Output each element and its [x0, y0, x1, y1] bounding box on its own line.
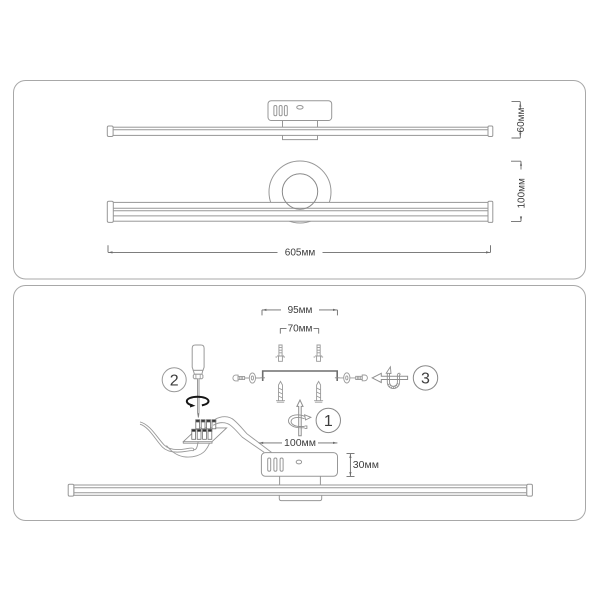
svg-text:100мм: 100мм [517, 178, 528, 209]
svg-text:70мм: 70мм [288, 324, 313, 335]
svg-text:605мм: 605мм [285, 248, 316, 259]
svg-text:2: 2 [170, 373, 179, 390]
svg-text:1: 1 [324, 413, 333, 430]
svg-text:60мм: 60мм [516, 107, 527, 132]
svg-text:100мм: 100мм [284, 437, 316, 449]
svg-text:30мм: 30мм [353, 459, 379, 471]
svg-text:3: 3 [421, 371, 430, 388]
svg-text:95мм: 95мм [288, 305, 313, 316]
